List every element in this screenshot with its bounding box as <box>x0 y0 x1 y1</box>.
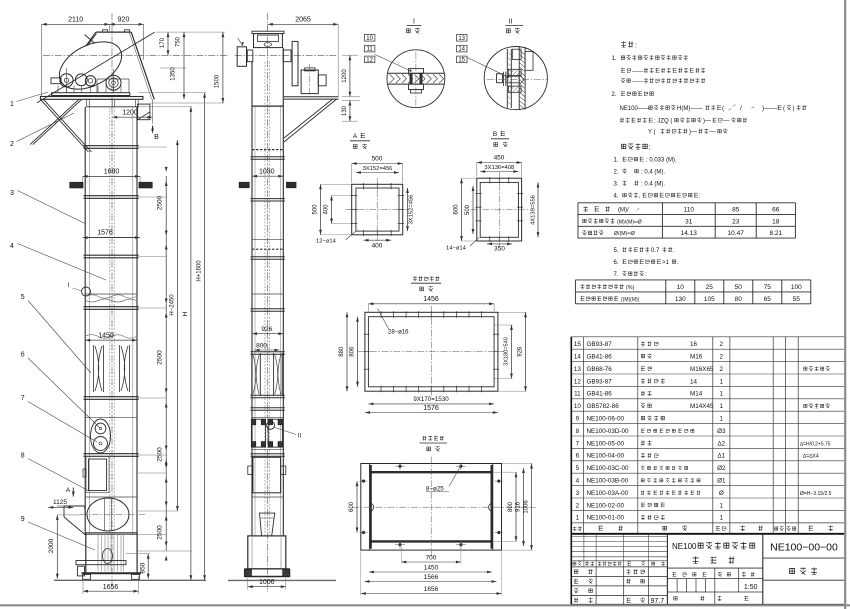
svg-text:4.: 4. <box>614 194 619 200</box>
svg-text:1: 1 <box>10 101 14 108</box>
svg-text:9: 9 <box>576 416 580 423</box>
svg-text:11: 11 <box>574 391 581 398</box>
svg-text:NE100−00−00: NE100−00−00 <box>770 542 838 554</box>
svg-text:500: 500 <box>313 204 319 215</box>
svg-text:3X180=540: 3X180=540 <box>504 337 510 366</box>
svg-text:8: 8 <box>21 453 25 460</box>
svg-text:6: 6 <box>21 352 25 359</box>
svg-text:14: 14 <box>458 47 465 53</box>
svg-text:2.: 2. <box>614 170 619 176</box>
svg-text:400: 400 <box>324 204 330 215</box>
svg-text:3.: 3. <box>614 182 619 188</box>
svg-text:2: 2 <box>720 366 724 373</box>
svg-text:1.: 1. <box>612 56 617 62</box>
svg-text:1566: 1566 <box>424 574 439 581</box>
svg-text:1456: 1456 <box>423 296 439 303</box>
svg-text:97.7: 97.7 <box>650 598 664 605</box>
svg-text:2: 2 <box>720 341 724 348</box>
svg-text:H(M)——: H(M)—— <box>677 106 702 112</box>
svg-text:)—: )— <box>703 119 711 125</box>
svg-text:5: 5 <box>576 465 580 472</box>
svg-text:400: 400 <box>372 243 383 250</box>
svg-text:M16: M16 <box>690 354 703 361</box>
svg-text:Ø2: Ø2 <box>717 465 726 472</box>
svg-text:1030: 1030 <box>259 169 275 176</box>
svg-text:1006: 1006 <box>524 500 530 514</box>
svg-text:3: 3 <box>10 190 14 197</box>
svg-text:1:50: 1:50 <box>744 584 758 591</box>
svg-text:——: —— <box>632 69 644 75</box>
svg-text:7: 7 <box>21 395 25 402</box>
svg-text:NE100: NE100 <box>672 542 697 551</box>
svg-text:1125: 1125 <box>53 499 67 506</box>
svg-text:170: 170 <box>160 37 166 48</box>
svg-text:12−ø14: 12−ø14 <box>316 239 337 245</box>
svg-text:18: 18 <box>772 218 780 225</box>
svg-text:: 0.4 (M).: : 0.4 (M). <box>641 182 665 188</box>
svg-text:2500: 2500 <box>157 350 164 365</box>
svg-text:750: 750 <box>176 36 182 47</box>
svg-text:23: 23 <box>732 218 740 225</box>
svg-text:>1: >1 <box>662 260 670 266</box>
svg-text:12: 12 <box>574 378 582 385</box>
svg-text:6: 6 <box>576 453 580 460</box>
svg-text:50: 50 <box>735 284 743 291</box>
svg-text:800: 800 <box>256 342 267 349</box>
svg-text:880: 880 <box>339 346 345 357</box>
svg-text:9: 9 <box>21 516 25 523</box>
svg-text:4: 4 <box>10 243 14 250</box>
svg-text:4: 4 <box>576 478 580 485</box>
svg-text:: 0.033 (M).: : 0.033 (M). <box>646 158 677 164</box>
svg-text:∆=∆X4: ∆=∆X4 <box>803 454 819 460</box>
svg-text:2065: 2065 <box>295 17 311 24</box>
svg-text:Ø/(M)═Ø: Ø/(M)═Ø <box>614 231 635 237</box>
svg-text:2500: 2500 <box>157 525 164 540</box>
svg-text:H+1600: H+1600 <box>197 260 203 282</box>
svg-text:5.: 5. <box>614 248 619 254</box>
svg-text:2: 2 <box>720 354 724 361</box>
svg-text:8: 8 <box>576 428 580 435</box>
svg-text:∆2: ∆2 <box>718 440 726 447</box>
svg-text:1656: 1656 <box>424 586 439 593</box>
svg-text:A: A <box>66 487 71 494</box>
svg-text:——: —— <box>632 79 644 85</box>
svg-text:7.: 7. <box>614 272 619 278</box>
svg-text:12: 12 <box>366 58 373 64</box>
svg-text:7: 7 <box>576 440 580 447</box>
svg-text:850: 850 <box>140 562 147 573</box>
svg-text:105: 105 <box>704 296 715 303</box>
svg-text:1.: 1. <box>614 158 619 164</box>
svg-text:((M)(M)): ((M)(M)) <box>621 297 640 303</box>
svg-text:65: 65 <box>764 296 772 303</box>
svg-text:NE100-06-00: NE100-06-00 <box>587 416 625 423</box>
svg-text:NE100-02-00: NE100-02-00 <box>587 502 625 509</box>
svg-text:1: 1 <box>720 515 724 522</box>
svg-text:II: II <box>509 19 513 26</box>
svg-text:GB68-76: GB68-76 <box>587 366 613 373</box>
svg-text:1: 1 <box>720 403 724 410</box>
svg-text:M14: M14 <box>690 391 703 398</box>
svg-text:): ) <box>793 106 795 112</box>
svg-text:Ø3: Ø3 <box>717 428 726 435</box>
svg-text:∆=H/0.2+5.75: ∆=H/0.2+5.75 <box>800 441 831 447</box>
svg-text:14.13: 14.13 <box>681 230 698 237</box>
svg-text:1: 1 <box>720 378 724 385</box>
svg-text:8−ø25: 8−ø25 <box>426 485 444 492</box>
svg-text:85: 85 <box>732 207 740 214</box>
svg-text:Y (: Y ( <box>648 130 656 136</box>
svg-text:500: 500 <box>372 156 383 163</box>
svg-text:∆1: ∆1 <box>718 453 726 460</box>
svg-text:100: 100 <box>791 284 802 291</box>
svg-text:600: 600 <box>349 501 355 512</box>
svg-text:1: 1 <box>720 502 724 509</box>
svg-text:806: 806 <box>350 346 356 357</box>
svg-text:6.: 6. <box>614 260 619 266</box>
svg-text:(M)/(M)═Ø: (M)/(M)═Ø <box>617 219 642 225</box>
svg-text:(%): (%) <box>626 285 635 291</box>
svg-text:75: 75 <box>764 284 772 291</box>
svg-text:(: ( <box>783 106 785 112</box>
svg-text:1576: 1576 <box>97 230 113 237</box>
svg-text:4X139=556: 4X139=556 <box>531 195 537 225</box>
svg-text:66: 66 <box>772 207 780 214</box>
svg-text:2110: 2110 <box>68 17 83 24</box>
svg-text:—: — <box>710 130 716 136</box>
svg-text:GB41-86: GB41-86 <box>587 354 613 361</box>
svg-text:NE100-03C-00: NE100-03C-00 <box>587 465 630 472</box>
svg-text:2: 2 <box>10 141 14 148</box>
svg-text:8.21: 8.21 <box>769 230 782 237</box>
svg-text:NE100-05-00: NE100-05-00 <box>587 440 625 447</box>
svg-text:10: 10 <box>366 36 373 42</box>
svg-text:28−ø16: 28−ø16 <box>388 330 409 336</box>
svg-text:1500: 1500 <box>215 74 221 88</box>
svg-text:55: 55 <box>793 296 801 303</box>
svg-text:NE100-03A-00: NE100-03A-00 <box>587 490 629 497</box>
svg-text:NE100-01-00: NE100-01-00 <box>587 515 625 522</box>
svg-text:13: 13 <box>574 366 582 373</box>
svg-text:500: 500 <box>465 204 471 215</box>
svg-text:25: 25 <box>706 284 714 291</box>
svg-text:1200: 1200 <box>122 110 138 117</box>
svg-text:5: 5 <box>21 294 25 301</box>
svg-text:2: 2 <box>576 502 580 509</box>
svg-text:M16X65: M16X65 <box>690 366 714 373</box>
svg-text:9X170=1530: 9X170=1530 <box>413 396 449 403</box>
svg-text:2500: 2500 <box>157 195 164 210</box>
svg-text:: 0.4 (M).: : 0.4 (M). <box>641 170 665 176</box>
svg-text:: JZQ (: : JZQ ( <box>654 119 672 125</box>
svg-text:916: 916 <box>516 501 522 512</box>
svg-text:1350: 1350 <box>171 67 177 81</box>
svg-text:14: 14 <box>574 354 582 361</box>
svg-text:700: 700 <box>426 554 437 561</box>
svg-text:10: 10 <box>574 403 582 410</box>
svg-text:1450: 1450 <box>424 564 439 571</box>
svg-text:920: 920 <box>118 17 130 24</box>
svg-text:)——: )—— <box>762 105 778 112</box>
svg-text:B: B <box>493 131 497 138</box>
svg-text:—: — <box>724 119 730 125</box>
svg-text:(M)/: (M)/ <box>618 208 629 214</box>
svg-text:926: 926 <box>261 326 272 333</box>
svg-text:10: 10 <box>677 284 685 291</box>
svg-text:1576: 1576 <box>423 405 439 412</box>
svg-text:3X136=408: 3X136=408 <box>484 165 514 171</box>
svg-text:1680: 1680 <box>104 168 120 175</box>
svg-text:1200: 1200 <box>342 69 348 83</box>
svg-text:/: / <box>740 105 742 112</box>
svg-text::: : <box>649 145 651 152</box>
svg-text:926: 926 <box>518 346 524 357</box>
svg-text:Ø: Ø <box>719 490 724 497</box>
svg-text:M14X45: M14X45 <box>690 403 714 410</box>
svg-text:3X152=456: 3X152=456 <box>363 166 393 172</box>
svg-text:I: I <box>68 282 70 289</box>
svg-text::: : <box>635 43 637 50</box>
svg-text:1: 1 <box>720 416 724 423</box>
svg-text:)—: )— <box>689 130 697 136</box>
svg-text:1: 1 <box>576 515 580 522</box>
svg-text:GB41-86: GB41-86 <box>587 391 613 398</box>
svg-text:10.47: 10.47 <box>728 230 745 237</box>
svg-text:14−ø14: 14−ø14 <box>446 246 467 252</box>
svg-text:GB93-87: GB93-87 <box>587 341 613 348</box>
svg-text:1450: 1450 <box>98 333 114 340</box>
svg-text:I: I <box>413 19 415 26</box>
svg-text:Ø1: Ø1 <box>717 478 726 485</box>
svg-text:450: 450 <box>494 155 505 162</box>
svg-text:NE100-03B-00: NE100-03B-00 <box>587 478 629 485</box>
svg-text:13: 13 <box>458 36 465 42</box>
svg-text:NE100-04-00: NE100-04-00 <box>587 453 625 460</box>
svg-text:350: 350 <box>494 246 505 253</box>
svg-text:3X152=456: 3X152=456 <box>408 195 414 225</box>
svg-text:1656: 1656 <box>103 584 119 591</box>
svg-text:600: 600 <box>454 204 460 215</box>
svg-text:14: 14 <box>690 378 698 385</box>
svg-text:2.: 2. <box>612 92 617 98</box>
svg-text:15: 15 <box>574 341 582 348</box>
svg-text:800: 800 <box>508 501 514 512</box>
svg-text:0.7: 0.7 <box>651 248 660 254</box>
svg-text:31: 31 <box>685 218 693 225</box>
svg-text:110: 110 <box>684 207 695 214</box>
svg-text:15: 15 <box>458 58 465 64</box>
svg-text:GB5782-86: GB5782-86 <box>587 403 620 410</box>
svg-text:Ø=H−3.15/2.5: Ø=H−3.15/2.5 <box>800 491 832 497</box>
svg-text:11: 11 <box>366 47 373 53</box>
svg-text:130: 130 <box>342 105 348 116</box>
svg-text:B: B <box>154 134 159 141</box>
svg-text:II: II <box>298 434 302 440</box>
svg-text:H−2450: H−2450 <box>169 294 175 316</box>
svg-text:GB93-87: GB93-87 <box>587 378 613 385</box>
svg-text:A: A <box>353 133 358 140</box>
svg-text:1006: 1006 <box>259 579 275 586</box>
svg-text:H: H <box>182 311 189 316</box>
svg-text:2500: 2500 <box>157 447 164 462</box>
svg-text:130: 130 <box>675 296 686 303</box>
svg-text:16: 16 <box>690 341 698 348</box>
svg-text:1: 1 <box>720 391 724 398</box>
svg-text:2000: 2000 <box>48 538 55 553</box>
svg-text:NE100——: NE100—— <box>620 106 650 112</box>
svg-text:80: 80 <box>735 296 743 303</box>
svg-text:3: 3 <box>576 490 580 497</box>
svg-text:NE100-03D-00: NE100-03D-00 <box>587 428 630 435</box>
